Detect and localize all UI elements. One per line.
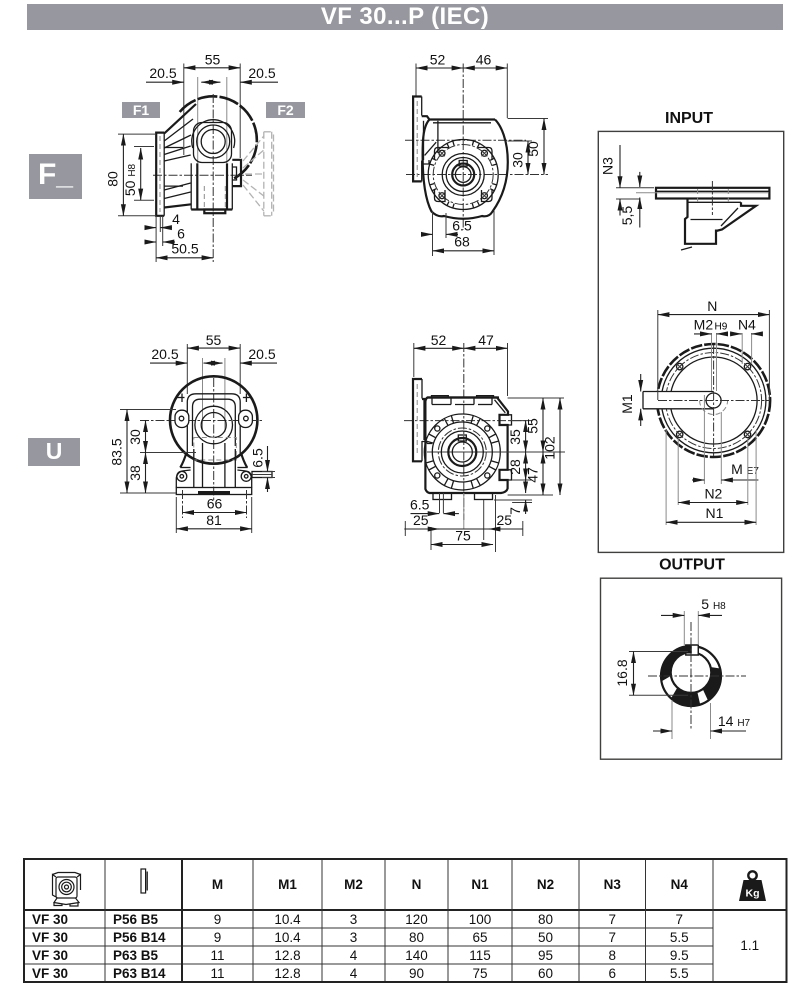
svg-text:N2: N2 bbox=[704, 486, 722, 502]
svg-text:6: 6 bbox=[177, 226, 185, 242]
svg-text:55: 55 bbox=[205, 52, 221, 68]
svg-text:P63 B14: P63 B14 bbox=[113, 966, 166, 981]
svg-text:N4: N4 bbox=[671, 877, 689, 892]
svg-text:25: 25 bbox=[413, 512, 429, 528]
svg-text:55: 55 bbox=[206, 332, 222, 348]
svg-text:80: 80 bbox=[538, 912, 553, 927]
svg-text:N1: N1 bbox=[471, 877, 489, 892]
svg-text:46: 46 bbox=[476, 52, 492, 68]
svg-text:75: 75 bbox=[455, 527, 471, 543]
svg-text:14 H7: 14 H7 bbox=[718, 713, 751, 729]
svg-text:N: N bbox=[412, 877, 422, 892]
svg-text:20.5: 20.5 bbox=[248, 346, 275, 362]
svg-text:N4: N4 bbox=[738, 317, 756, 333]
svg-text:55: 55 bbox=[525, 418, 541, 434]
svg-text:20.5: 20.5 bbox=[149, 65, 176, 81]
svg-text:83.5: 83.5 bbox=[109, 438, 125, 465]
svg-text:P56 B14: P56 B14 bbox=[113, 930, 166, 945]
svg-text:75: 75 bbox=[472, 966, 487, 981]
svg-text:20.5: 20.5 bbox=[248, 65, 275, 81]
svg-text:95: 95 bbox=[538, 948, 553, 963]
svg-text:52: 52 bbox=[431, 332, 447, 348]
svg-text:35: 35 bbox=[507, 429, 523, 445]
svg-text:N: N bbox=[707, 298, 717, 314]
svg-text:9.5: 9.5 bbox=[670, 948, 689, 963]
svg-text:50.5: 50.5 bbox=[171, 240, 198, 256]
svg-text:100: 100 bbox=[469, 912, 492, 927]
svg-text:50: 50 bbox=[525, 141, 541, 157]
svg-text:115: 115 bbox=[469, 948, 491, 963]
svg-text:VF 30: VF 30 bbox=[32, 912, 68, 927]
svg-text:6.5: 6.5 bbox=[410, 496, 430, 512]
svg-text:7: 7 bbox=[675, 912, 683, 927]
svg-text:Kg: Kg bbox=[746, 888, 760, 900]
svg-text:102: 102 bbox=[542, 436, 558, 460]
svg-text:VF 30: VF 30 bbox=[32, 966, 68, 981]
svg-text:12.8: 12.8 bbox=[274, 948, 300, 963]
svg-text:OUTPUT: OUTPUT bbox=[659, 557, 725, 574]
svg-text:N1: N1 bbox=[706, 505, 724, 521]
svg-text:80: 80 bbox=[105, 171, 121, 187]
svg-text:25: 25 bbox=[497, 512, 513, 528]
svg-text:120: 120 bbox=[405, 912, 428, 927]
svg-text:5 H8: 5 H8 bbox=[701, 596, 726, 612]
svg-text:P56 B5: P56 B5 bbox=[113, 912, 159, 927]
svg-text:4: 4 bbox=[350, 948, 358, 963]
svg-text:P63 B5: P63 B5 bbox=[113, 948, 159, 963]
svg-text:INPUT: INPUT bbox=[665, 110, 713, 127]
svg-text:9: 9 bbox=[214, 912, 222, 927]
svg-text:N2: N2 bbox=[537, 877, 554, 892]
svg-text:68: 68 bbox=[454, 234, 470, 250]
svg-text:20.5: 20.5 bbox=[151, 346, 178, 362]
svg-text:38: 38 bbox=[127, 465, 143, 481]
svg-text:66: 66 bbox=[207, 496, 223, 512]
svg-text:M1: M1 bbox=[278, 877, 297, 892]
svg-text:5.5: 5.5 bbox=[670, 930, 689, 945]
svg-text:30: 30 bbox=[510, 152, 526, 168]
svg-text:140: 140 bbox=[405, 948, 428, 963]
svg-text:28: 28 bbox=[507, 459, 523, 475]
svg-text:50: 50 bbox=[538, 930, 553, 945]
svg-text:4: 4 bbox=[350, 966, 358, 981]
svg-text:9: 9 bbox=[214, 930, 222, 945]
svg-text:M2: M2 bbox=[694, 317, 714, 333]
svg-text:VF 30: VF 30 bbox=[32, 948, 68, 963]
svg-text:H9: H9 bbox=[715, 322, 728, 333]
svg-text:6.5: 6.5 bbox=[250, 448, 266, 468]
svg-text:5,5: 5,5 bbox=[619, 206, 635, 226]
svg-text:M E7: M E7 bbox=[731, 461, 759, 477]
svg-text:1.1: 1.1 bbox=[740, 938, 759, 953]
svg-text:10.4: 10.4 bbox=[274, 912, 301, 927]
svg-text:47: 47 bbox=[478, 332, 494, 348]
svg-text:47: 47 bbox=[525, 467, 541, 483]
svg-text:30: 30 bbox=[127, 429, 143, 445]
svg-text:M: M bbox=[212, 877, 223, 892]
svg-text:N3: N3 bbox=[604, 877, 622, 892]
svg-text:6: 6 bbox=[608, 966, 616, 981]
svg-text:11: 11 bbox=[210, 966, 224, 981]
svg-text:12.8: 12.8 bbox=[274, 966, 300, 981]
svg-text:3: 3 bbox=[350, 912, 358, 927]
svg-text:60: 60 bbox=[538, 966, 553, 981]
svg-text:52: 52 bbox=[430, 52, 446, 68]
svg-text:M1: M1 bbox=[619, 394, 635, 414]
svg-text:M2: M2 bbox=[344, 877, 363, 892]
svg-text:VF 30: VF 30 bbox=[32, 930, 68, 945]
svg-text:5.5: 5.5 bbox=[670, 966, 689, 981]
svg-text:65: 65 bbox=[472, 930, 487, 945]
svg-text:6.5: 6.5 bbox=[452, 217, 472, 233]
svg-text:3: 3 bbox=[350, 930, 358, 945]
svg-text:81: 81 bbox=[206, 512, 222, 528]
svg-text:11: 11 bbox=[210, 948, 224, 963]
svg-text:7: 7 bbox=[608, 912, 616, 927]
svg-text:8: 8 bbox=[608, 948, 616, 963]
svg-text:7: 7 bbox=[608, 930, 616, 945]
svg-text:16.8: 16.8 bbox=[614, 659, 630, 686]
svg-text:90: 90 bbox=[409, 966, 424, 981]
svg-text:10.4: 10.4 bbox=[274, 930, 301, 945]
svg-text:50 H8: 50 H8 bbox=[122, 163, 138, 196]
svg-text:80: 80 bbox=[409, 930, 424, 945]
svg-text:N3: N3 bbox=[600, 157, 616, 175]
